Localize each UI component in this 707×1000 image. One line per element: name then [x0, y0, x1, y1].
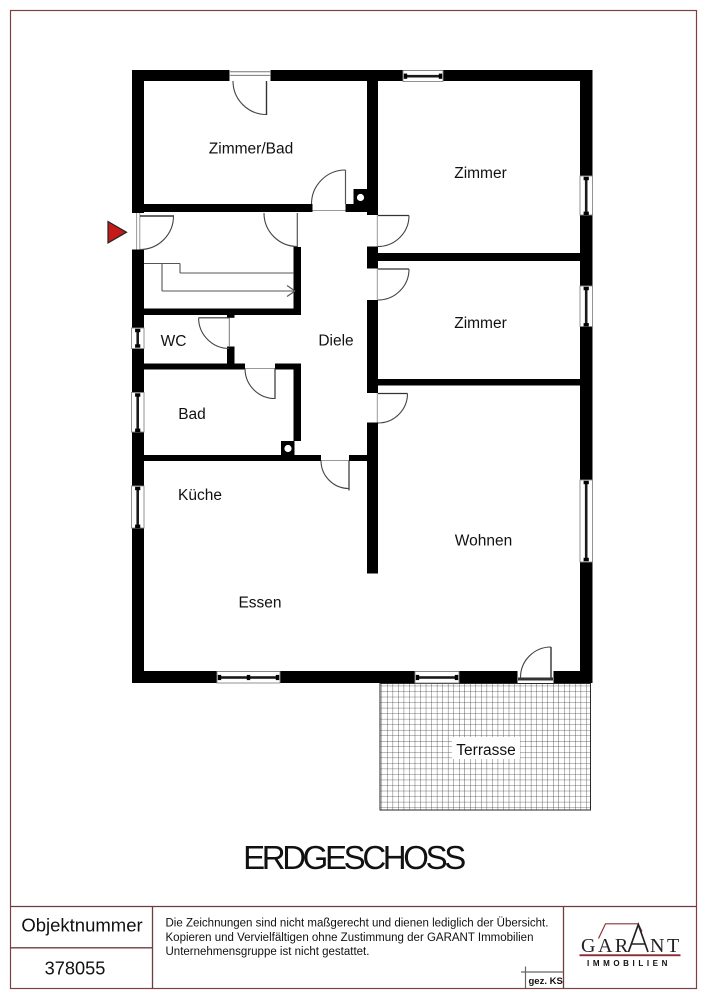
- svg-text:Kopieren und Vervielfältigen o: Kopieren und Vervielfältigen ohne Zustim…: [166, 932, 534, 944]
- svg-text:Küche: Küche: [178, 487, 222, 504]
- svg-text:378055: 378055: [45, 958, 106, 978]
- svg-text:Terrasse: Terrasse: [456, 742, 515, 759]
- svg-text:Unternehmensgruppe ist nicht g: Unternehmensgruppe ist nicht gestattet.: [166, 946, 370, 958]
- svg-text:Zimmer/Bad: Zimmer/Bad: [209, 141, 293, 158]
- svg-text:Die Zeichnungen sind nicht maß: Die Zeichnungen sind nicht maßgerecht un…: [166, 918, 549, 930]
- svg-text:Bad: Bad: [178, 406, 206, 423]
- svg-text:IMMOBILIEN: IMMOBILIEN: [587, 959, 671, 968]
- svg-text:Essen: Essen: [238, 595, 281, 612]
- svg-text:ERDGESCHOSS: ERDGESCHOSS: [243, 839, 465, 876]
- svg-text:gez. KS: gez. KS: [529, 976, 563, 987]
- svg-text:NT: NT: [650, 935, 682, 957]
- svg-text:Wohnen: Wohnen: [455, 533, 512, 550]
- svg-text:Zimmer: Zimmer: [454, 165, 507, 182]
- svg-text:GAR: GAR: [581, 935, 631, 957]
- svg-text:Diele: Diele: [318, 333, 353, 350]
- svg-text:Zimmer: Zimmer: [454, 315, 507, 332]
- svg-text:WC: WC: [161, 333, 187, 350]
- svg-text:Objektnummer: Objektnummer: [21, 915, 142, 936]
